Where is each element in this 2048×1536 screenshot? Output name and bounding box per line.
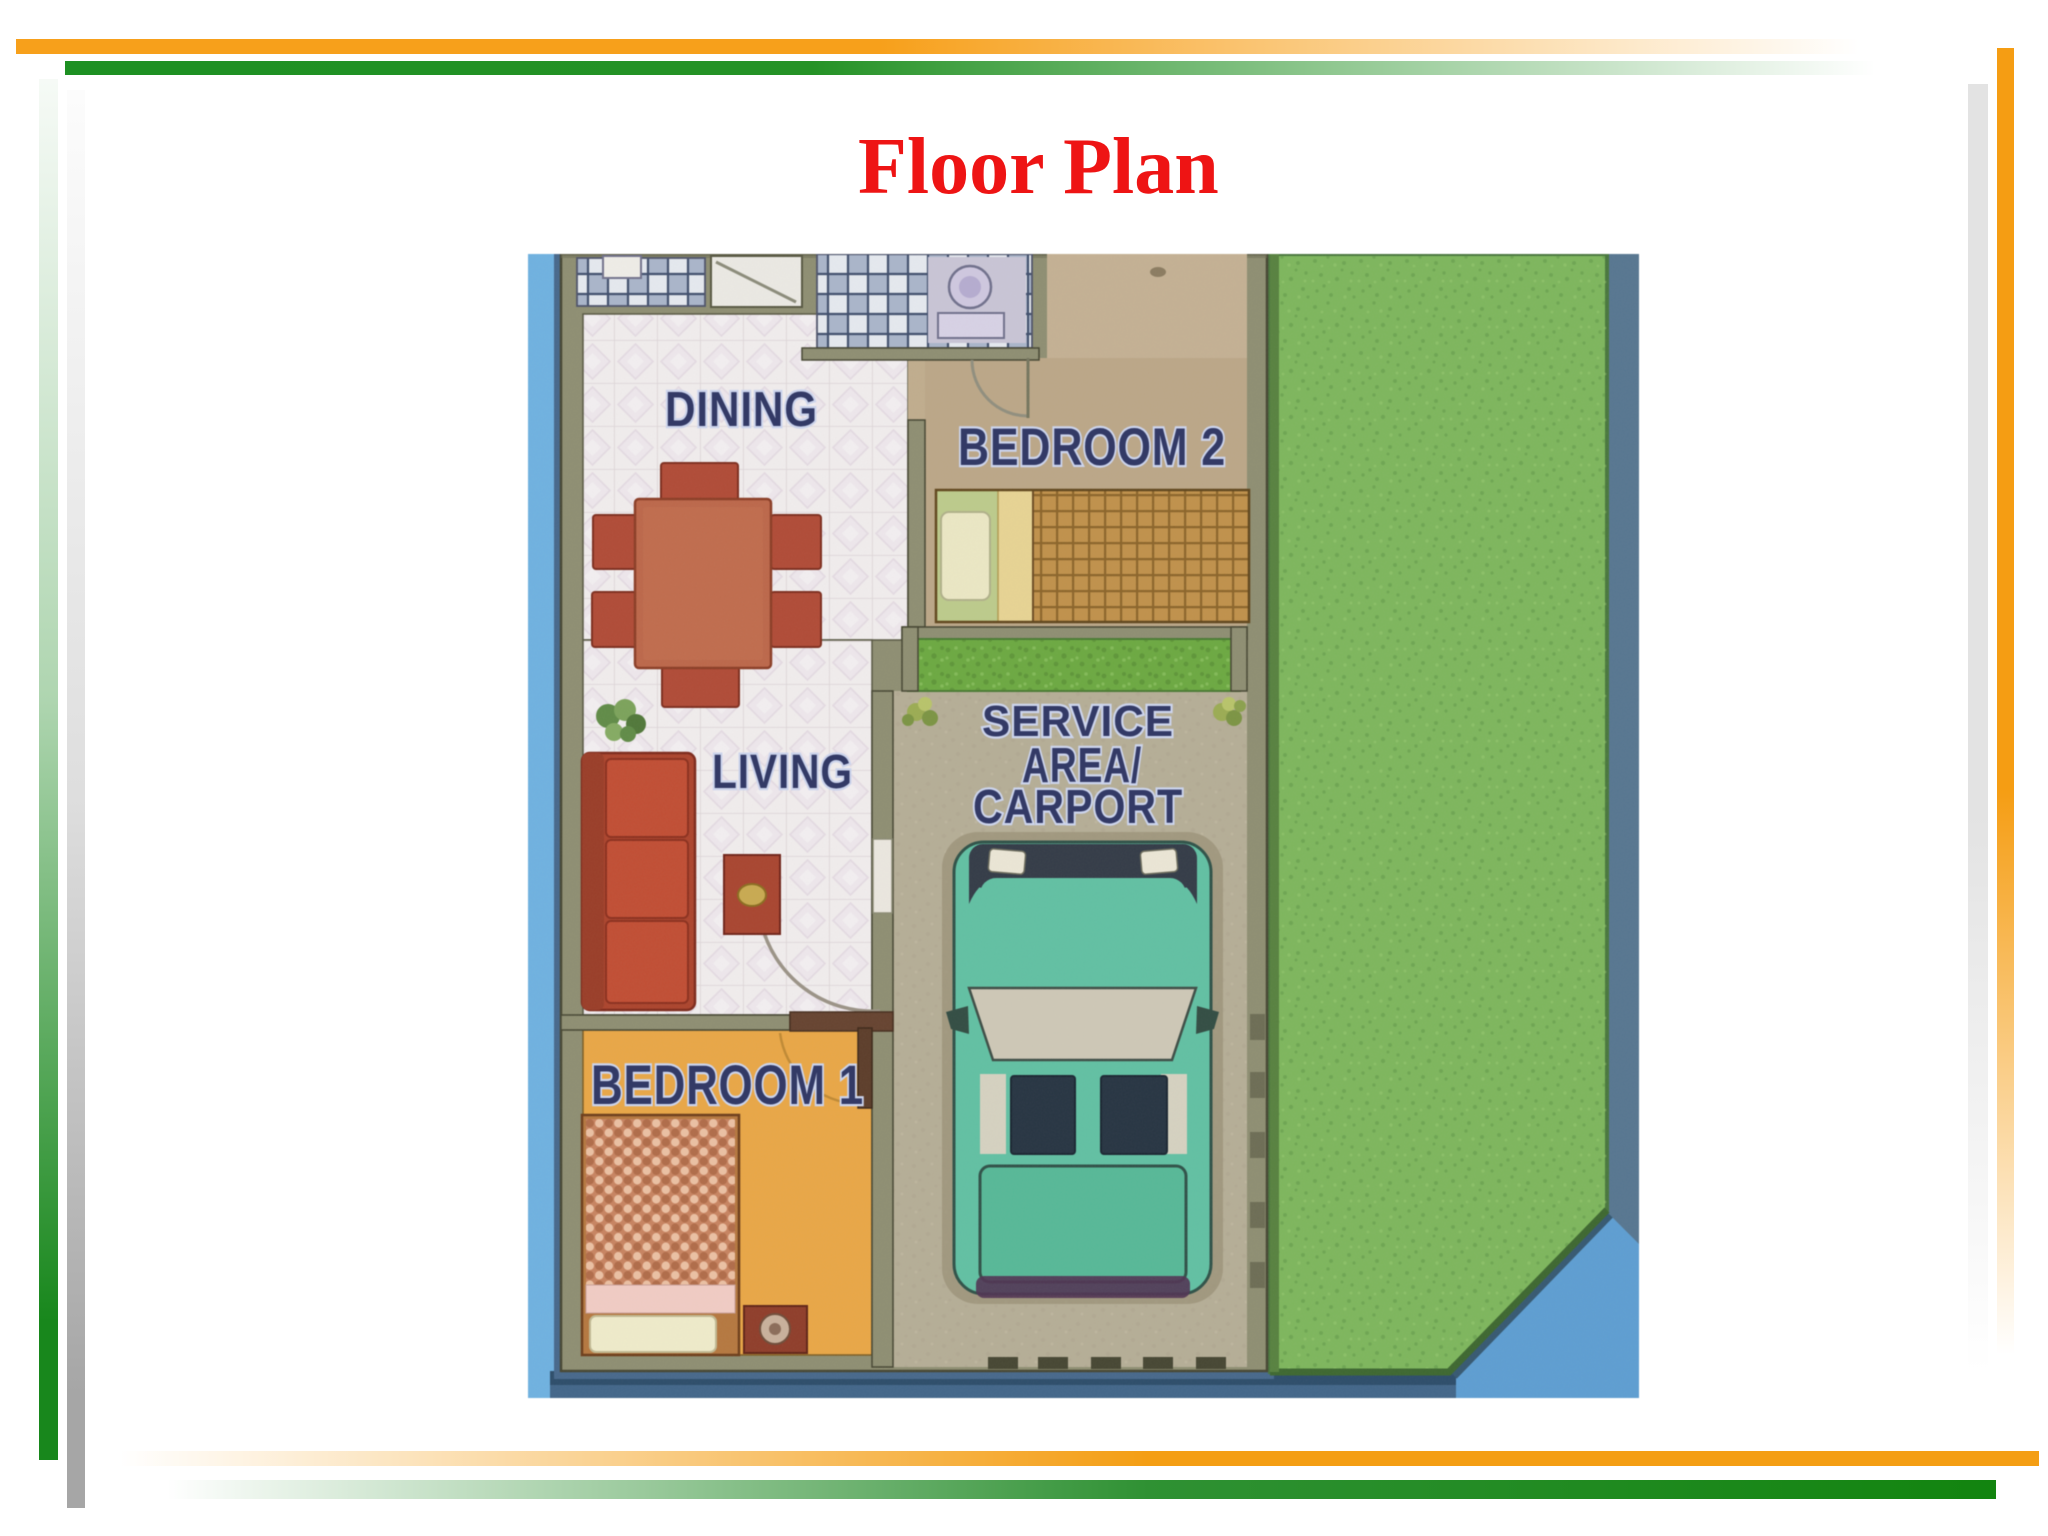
svg-text:CARPORT: CARPORT	[973, 781, 1183, 834]
svg-text:BEDROOM 1: BEDROOM 1	[591, 1053, 864, 1116]
svg-text:LIVING: LIVING	[712, 746, 853, 799]
svg-text:DINING: DINING	[665, 383, 818, 437]
svg-text:BEDROOM 2: BEDROOM 2	[958, 418, 1226, 477]
